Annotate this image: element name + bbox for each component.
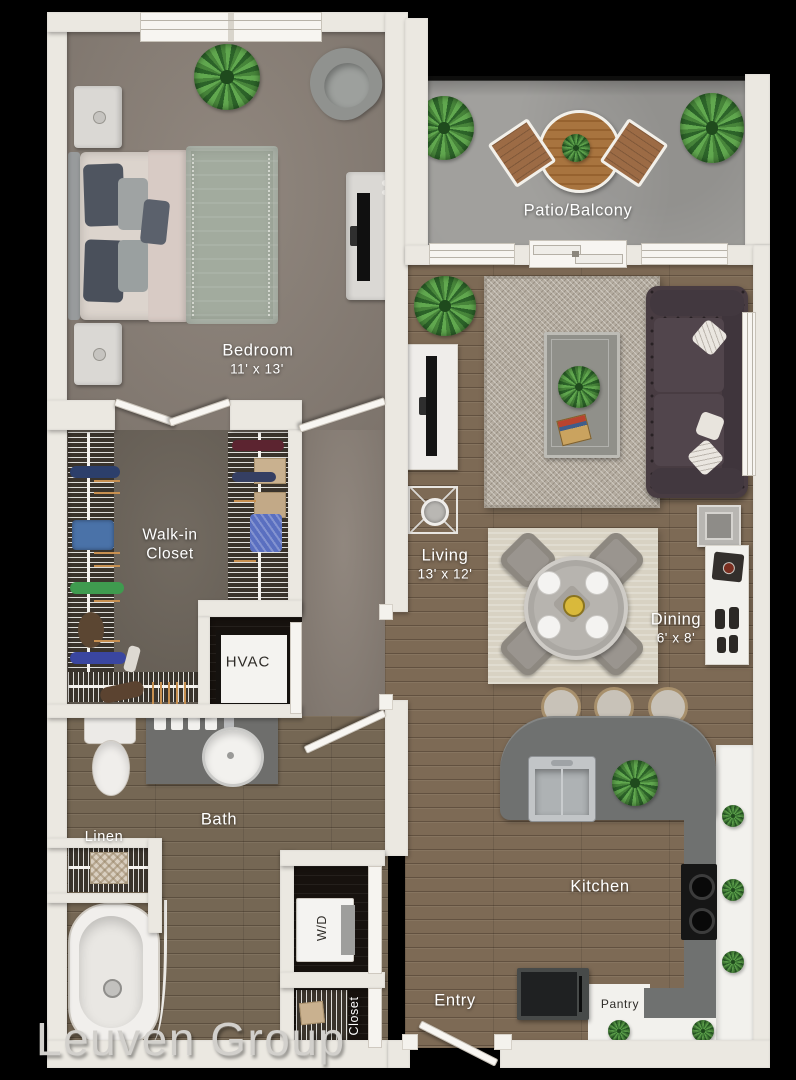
bottle (715, 609, 725, 629)
kitchen-faucet (551, 760, 573, 766)
wd-door (368, 866, 382, 974)
living-window (429, 243, 515, 265)
watermark: Leuven Group (36, 1012, 346, 1066)
pantry-label: Pantry (601, 997, 639, 1011)
patio-plant (680, 93, 744, 163)
bedroom-plant (194, 44, 260, 110)
patio-edge-rail (428, 76, 745, 81)
hanging-clothes (232, 472, 276, 482)
counter-plant (722, 805, 744, 827)
bottle (729, 607, 739, 629)
linen-basket (90, 852, 128, 884)
dining-window (742, 312, 756, 476)
tv-screen (357, 193, 370, 281)
bath-sink (202, 727, 264, 787)
place-setting-plate (585, 615, 609, 639)
tray-bottle (722, 562, 735, 575)
hanger (94, 552, 120, 554)
bedroom-label: Bedroom (222, 342, 293, 361)
living-side-table (697, 505, 741, 547)
hanger (152, 682, 154, 704)
pantry-plant (608, 1020, 630, 1042)
sofa (646, 286, 748, 498)
hanger (234, 560, 256, 562)
hanging-clothes (70, 652, 126, 664)
bedroom-dims: 11' x 13' (230, 362, 284, 377)
stove-cooktop (681, 864, 717, 940)
nightstand-knob (93, 111, 106, 124)
wall (280, 850, 385, 866)
nightstand (74, 86, 122, 148)
refrigerator-door (521, 972, 577, 1016)
wall (198, 617, 210, 716)
armchair-seat (315, 54, 378, 117)
slider-handle (572, 251, 579, 257)
living-window (641, 243, 728, 265)
duvet-stud-line (268, 154, 270, 316)
door-jamb (494, 1034, 512, 1050)
door-jamb (379, 694, 393, 710)
refrigerator-handle (579, 976, 582, 1012)
burner (689, 874, 715, 900)
kitchen-counter-corner (644, 988, 716, 1018)
tv-screen (426, 356, 437, 456)
door-jamb (379, 604, 393, 620)
wall (385, 700, 408, 856)
bottle (717, 637, 726, 653)
hanger (176, 682, 178, 704)
sofa-back (722, 292, 744, 492)
wall (148, 838, 162, 933)
hanging-clothes (232, 440, 284, 451)
nightstand (74, 323, 122, 385)
bottle (729, 635, 738, 653)
living-end-table (408, 486, 458, 534)
pillow (140, 199, 170, 245)
bedroom-window (140, 12, 322, 42)
place-setting-plate (537, 615, 561, 639)
hanger (94, 480, 120, 482)
serving-tray (712, 552, 745, 583)
hanger (234, 500, 256, 502)
refrigerator (517, 968, 589, 1020)
counter-plant (722, 951, 744, 973)
bed-duvet (186, 146, 278, 324)
hvac-label: HVAC (226, 654, 271, 671)
wall (280, 972, 385, 988)
sink-divider (561, 769, 563, 815)
kitchen-label: Kitchen (570, 878, 629, 897)
living-label: Living (422, 547, 469, 566)
side-table-inner (705, 512, 733, 540)
sofa-arm (650, 290, 744, 316)
wall (47, 400, 115, 430)
hanging-clothes (70, 582, 124, 594)
centerpiece-bowl (563, 595, 585, 617)
dining-console (705, 545, 749, 665)
living-dims: 13' x 12' (418, 567, 473, 582)
door-jamb (402, 1034, 418, 1050)
hanger (94, 600, 120, 602)
burner (689, 908, 715, 934)
wall (745, 74, 770, 245)
dining-dims: 6' x 8' (657, 631, 696, 646)
hanger (160, 682, 162, 704)
hall-floor (302, 430, 385, 716)
handbag (78, 612, 104, 648)
wall (288, 430, 302, 612)
bath-label: Bath (201, 811, 237, 830)
walk-in-closet-label: Walk-in Closet (127, 526, 213, 563)
patio-label: Patio/Balcony (524, 202, 633, 221)
hanger (94, 565, 120, 567)
pantry-plant (692, 1020, 714, 1042)
entry-closet-door (368, 988, 382, 1048)
sink-drain (227, 752, 234, 759)
wd-label: W/D (315, 915, 329, 941)
hanger (184, 682, 186, 704)
hanger (94, 492, 120, 494)
wall (230, 400, 302, 430)
toilet-bowl (92, 740, 130, 796)
island-plant (612, 760, 658, 806)
hanging-jacket (72, 520, 114, 550)
wall (405, 18, 428, 262)
entry-closet-label: Closet (347, 996, 361, 1035)
wall (198, 600, 302, 617)
wall (500, 1040, 770, 1068)
place-setting-plate (585, 571, 609, 595)
washer-lid (341, 905, 355, 955)
dining-label: Dining (651, 611, 701, 630)
counter-plant (722, 879, 744, 901)
hanging-clothes (70, 466, 120, 478)
wall (47, 704, 302, 718)
living-plant (414, 276, 476, 336)
table-lamp (421, 498, 449, 526)
doorway-threshold (385, 612, 407, 700)
wall (47, 893, 160, 903)
floorplan: Bedroom 11' x 13' Patio/Balcony Walk-in … (0, 0, 796, 1080)
hanger (94, 640, 120, 642)
linen-label: Linen (85, 829, 123, 845)
coffee-table-plant (558, 366, 600, 408)
nightstand-knob (93, 348, 106, 361)
bed-headboard (68, 152, 80, 320)
living-tv-console (404, 344, 458, 470)
pillow (118, 240, 148, 292)
sofa-arm (650, 468, 744, 494)
kitchen-sink (528, 756, 596, 822)
hvac-door (290, 622, 302, 714)
place-setting-plate (537, 571, 561, 595)
patio-sliding-door (529, 240, 627, 268)
slider-panel (575, 254, 623, 264)
duvet-stud-line (192, 154, 194, 316)
patio-table-plant (562, 134, 590, 162)
bathtub-drain (103, 979, 122, 998)
hanger (168, 682, 170, 704)
entry-label: Entry (434, 992, 476, 1011)
folded-shirt (250, 514, 282, 552)
